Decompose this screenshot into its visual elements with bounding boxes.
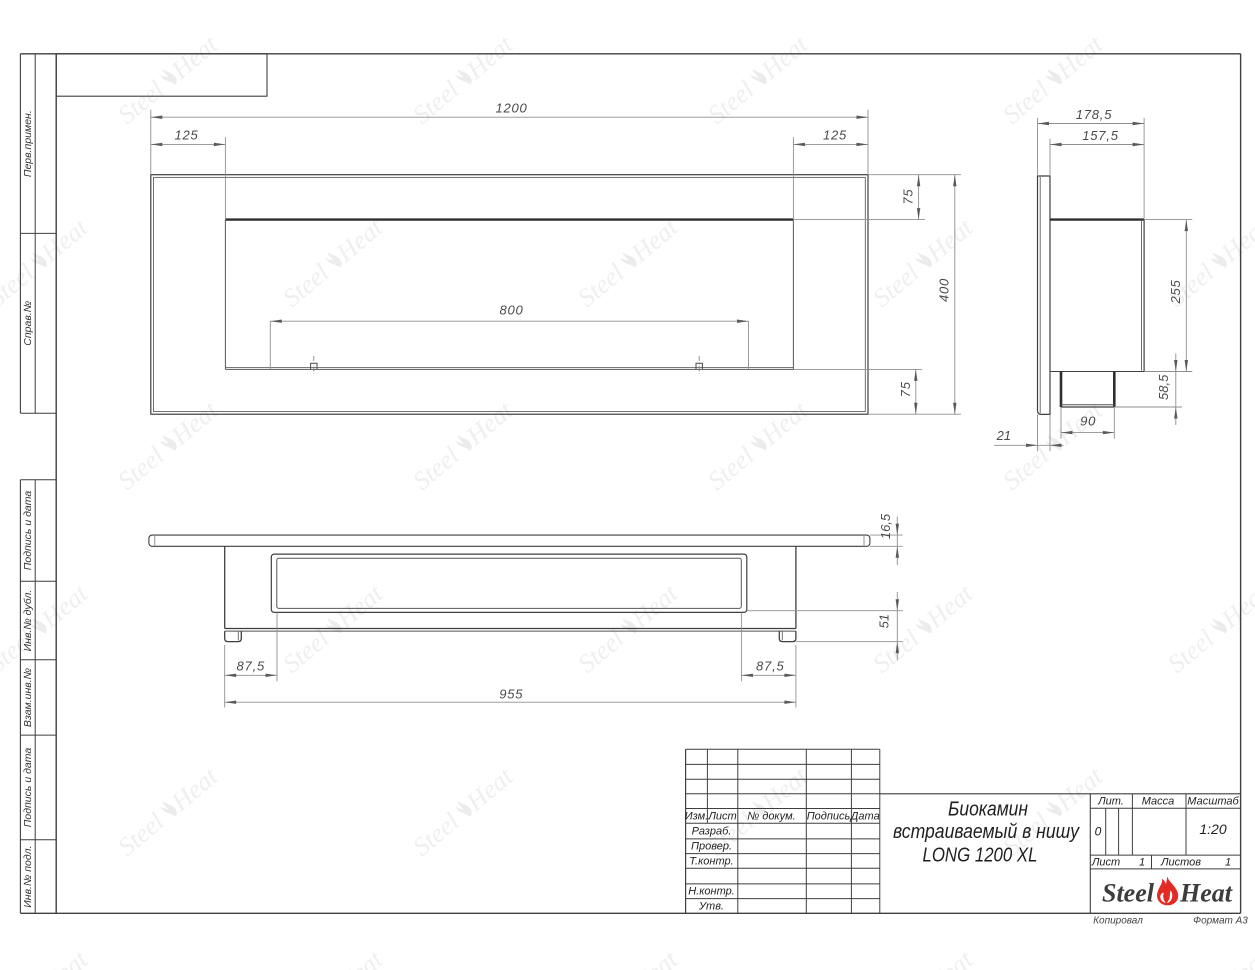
svg-text:Инв.№ подл.: Инв.№ подл.	[22, 845, 34, 907]
svg-text:Steel: Steel	[1102, 879, 1155, 908]
svg-text:955: 955	[499, 686, 523, 701]
svg-text:Масштаб: Масштаб	[1187, 796, 1239, 808]
svg-text:1:20: 1:20	[1199, 821, 1226, 837]
svg-text:Лист: Лист	[1091, 856, 1120, 868]
svg-text:Провер.: Провер.	[691, 841, 732, 853]
svg-text:800: 800	[499, 303, 523, 318]
svg-text:255: 255	[1168, 279, 1183, 304]
svg-text:1200: 1200	[495, 101, 527, 116]
svg-text:21: 21	[996, 428, 1011, 443]
svg-text:Утв.: Утв.	[698, 900, 724, 912]
svg-text:87,5: 87,5	[756, 658, 785, 673]
svg-text:№ докум.: № докум.	[747, 811, 795, 823]
svg-text:Подпись и дата: Подпись и дата	[22, 491, 34, 571]
svg-text:Формат А3: Формат А3	[1193, 916, 1248, 927]
svg-text:Листов: Листов	[1160, 856, 1201, 868]
svg-text:0: 0	[1095, 825, 1102, 839]
svg-text:90: 90	[1080, 413, 1096, 428]
svg-text:Инв.№ дубл.: Инв.№ дубл.	[22, 590, 34, 652]
svg-text:Подпись и дата: Подпись и дата	[22, 748, 34, 828]
svg-text:1: 1	[1225, 856, 1231, 868]
svg-text:75: 75	[901, 189, 916, 205]
svg-text:Дата: Дата	[849, 811, 880, 823]
svg-text:Т.контр.: Т.контр.	[689, 855, 733, 867]
svg-text:Взам.инв.№: Взам.инв.№	[22, 668, 34, 727]
svg-text:16,5: 16,5	[878, 513, 893, 539]
svg-text:Лист: Лист	[707, 811, 736, 823]
svg-text:178,5: 178,5	[1076, 107, 1113, 122]
svg-text:125: 125	[823, 128, 847, 143]
svg-text:Изм.: Изм.	[685, 811, 708, 823]
svg-text:87,5: 87,5	[237, 658, 266, 673]
svg-text:51: 51	[877, 614, 892, 628]
svg-text:Лит.: Лит.	[1097, 796, 1124, 808]
svg-text:1: 1	[1139, 856, 1145, 868]
svg-text:Биокамин: Биокамин	[948, 799, 1028, 821]
svg-text:75: 75	[898, 381, 913, 397]
svg-text:Heat: Heat	[1179, 879, 1233, 908]
svg-text:58,5: 58,5	[1156, 374, 1171, 400]
svg-text:встраиваемый в нишу: встраиваемый в нишу	[893, 821, 1080, 843]
svg-text:400: 400	[937, 278, 952, 302]
svg-text:Перв.примен.: Перв.примен.	[22, 110, 34, 177]
svg-text:LONG 1200 XL: LONG 1200 XL	[923, 845, 1038, 867]
svg-text:Н.контр.: Н.контр.	[688, 886, 735, 898]
svg-text:157,5: 157,5	[1082, 128, 1119, 143]
svg-text:Масса: Масса	[1142, 796, 1175, 808]
svg-text:Справ.№: Справ.№	[22, 301, 34, 346]
svg-text:Подпись: Подпись	[807, 811, 851, 823]
svg-text:Копировал: Копировал	[1093, 916, 1143, 927]
svg-text:125: 125	[174, 128, 198, 143]
svg-text:Разраб.: Разраб.	[692, 826, 732, 838]
